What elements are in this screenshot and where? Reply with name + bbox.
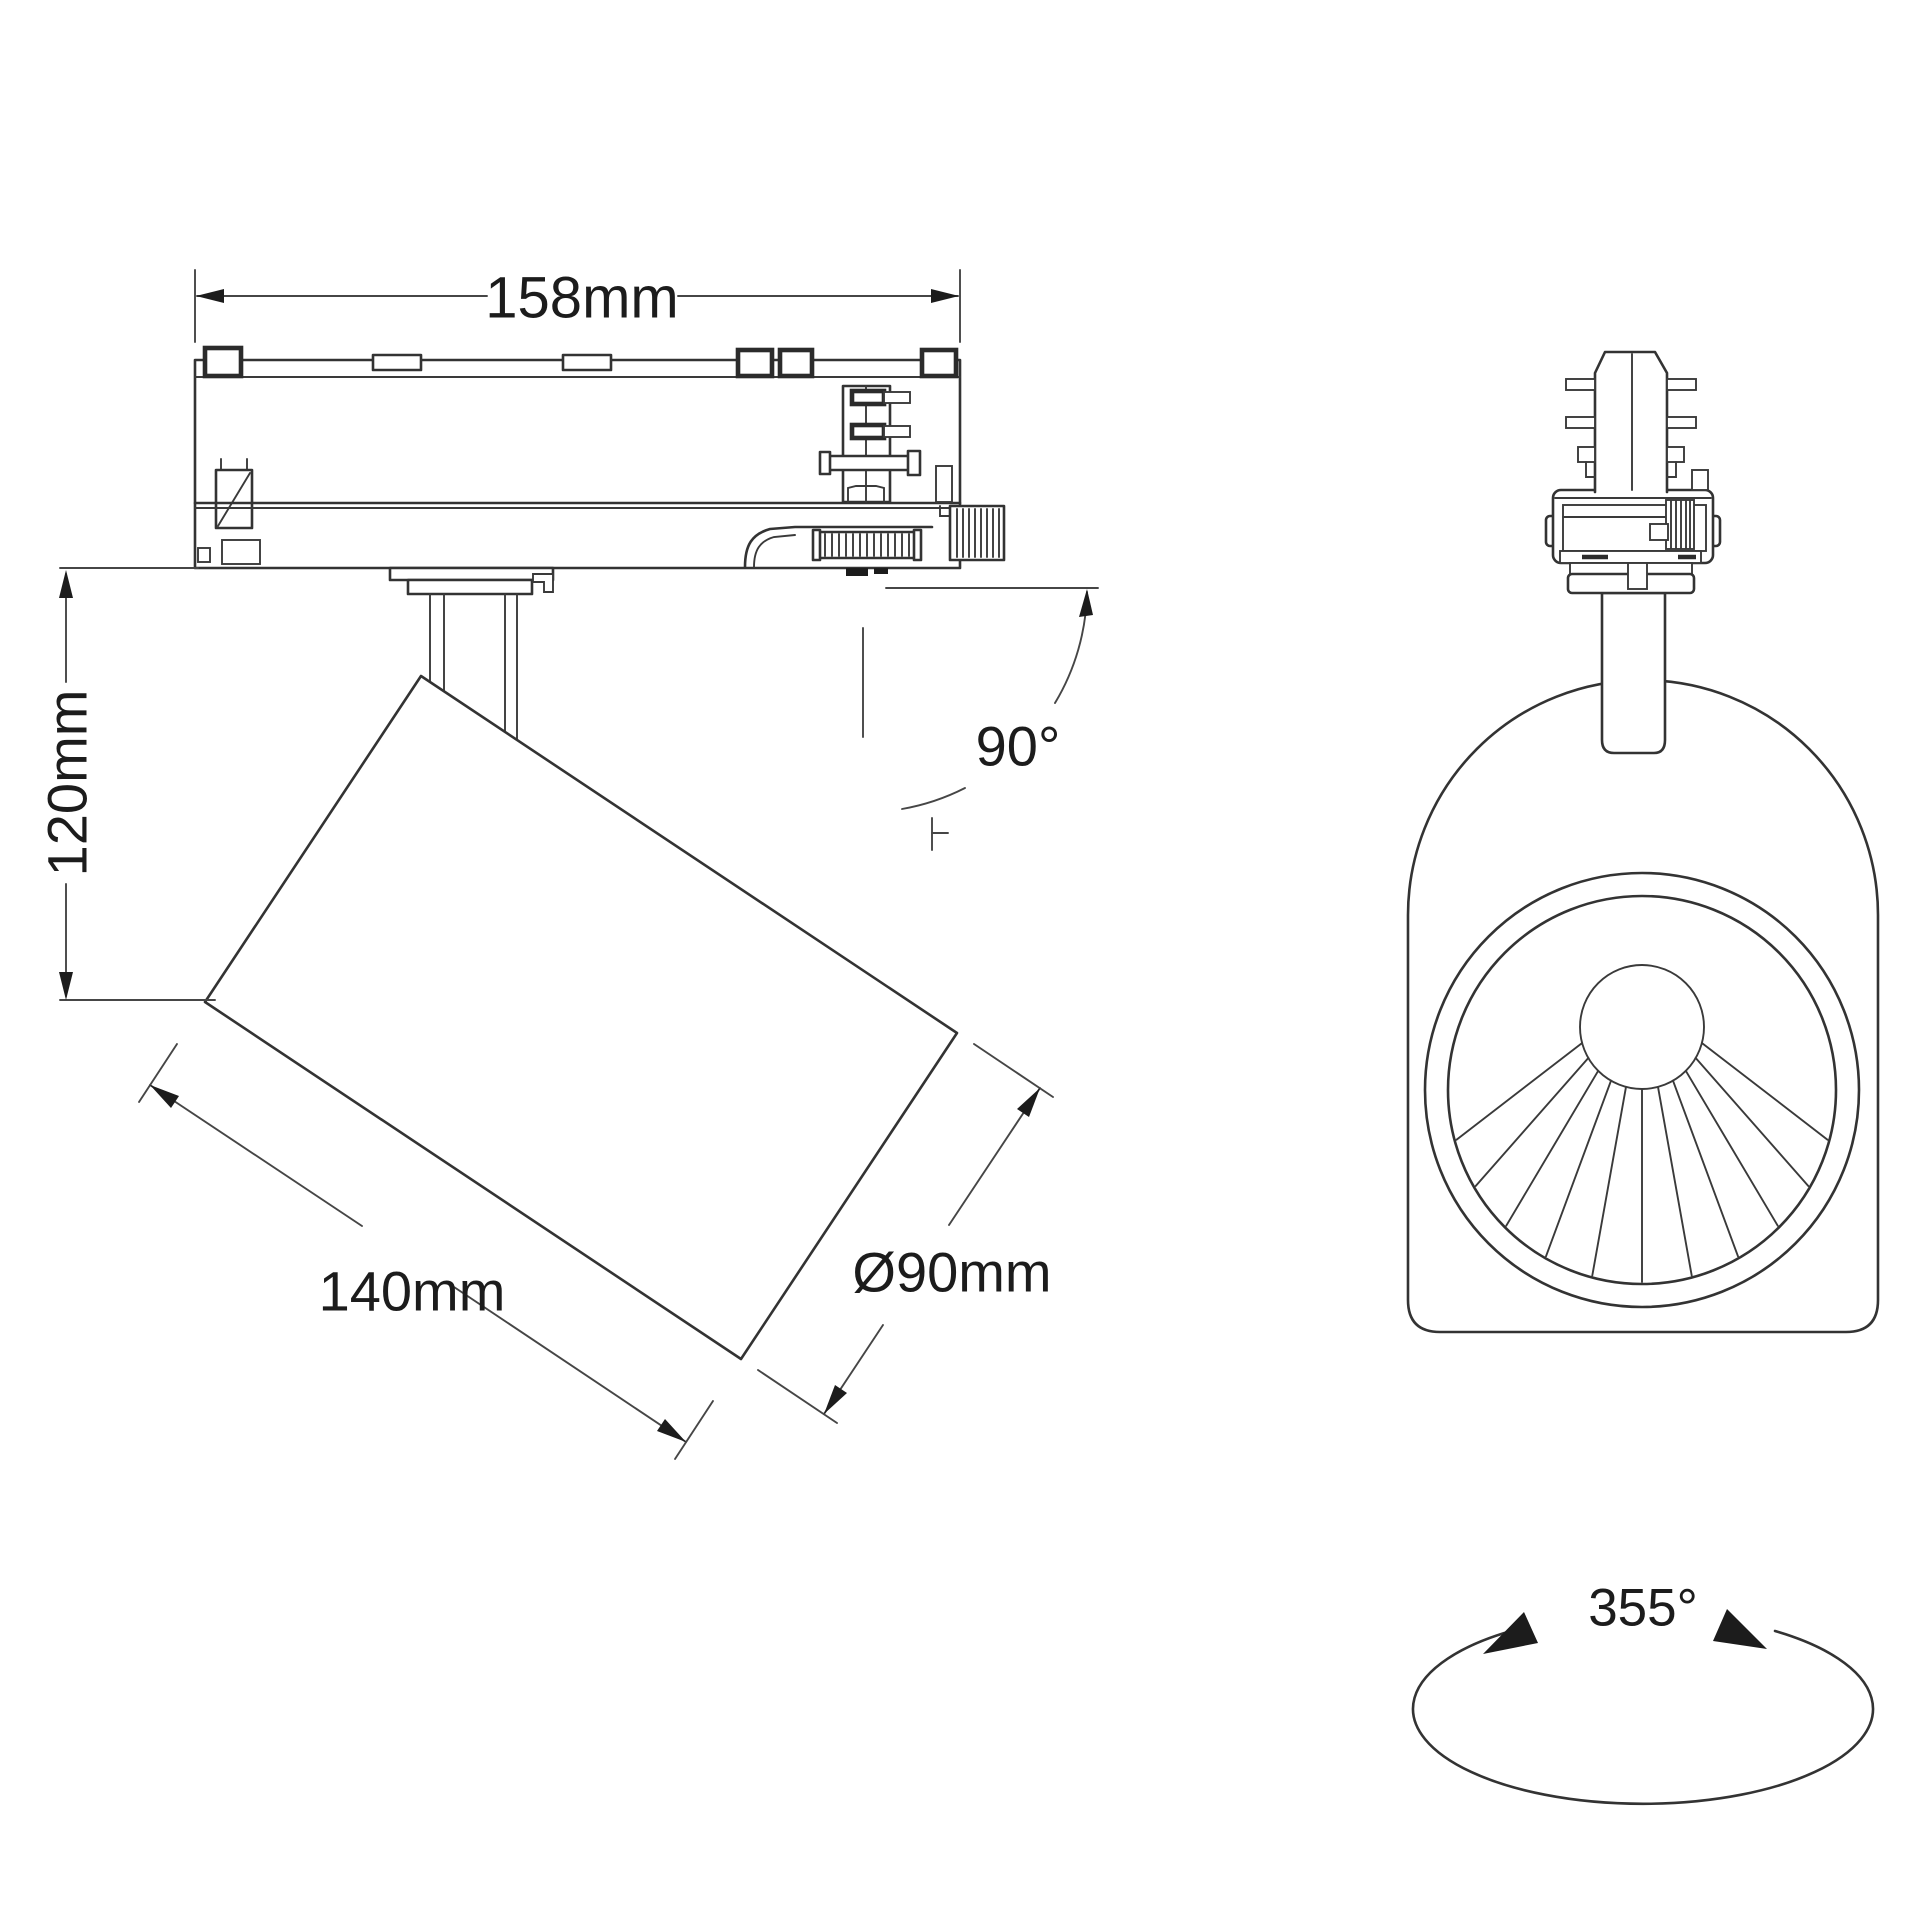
adapter-clip [563,355,611,370]
dimension-label-tilt: 90° [976,715,1061,778]
dim-arrow [1017,1088,1040,1117]
contact-clamp [852,425,884,438]
dim-arrow [657,1419,686,1442]
contact-crossbar [828,456,916,470]
dimension-label-height: 120mm [36,690,99,877]
contact-pin [1667,417,1696,428]
contact-pin [884,392,910,403]
tilt-arc-lower [902,788,965,809]
dim-arrow-down [59,972,73,1000]
adapter-clip [780,350,812,376]
dim-arrow [1079,589,1093,617]
connector-column [1595,352,1667,492]
dimension-label-diameter: Ø90mm [852,1241,1051,1304]
stem-front [1602,593,1665,753]
adapter-foot [846,568,868,576]
dimension-track-length: 158mm [195,266,960,343]
dim-arrow [150,1085,179,1108]
rotation-arrow-right [1713,1609,1767,1649]
front-view: 355° [1408,352,1878,1804]
connector-tab [1578,447,1595,462]
drawing-canvas: 158mm 120mm 140mm [0,0,1920,1920]
contact-clamp [852,391,884,404]
contact-pin [1566,417,1595,428]
contact-slot [936,466,952,502]
dim-arrow-left [196,289,224,303]
contact-pin [884,426,910,437]
dimension-label-body-length: 140mm [319,1260,506,1323]
connector-block [1692,470,1708,490]
side-knob [940,506,1004,560]
adapter-clip [373,355,421,370]
spotlight-body [205,676,957,1359]
contact-pin [1667,379,1696,390]
rotation-arrow-left [1483,1612,1538,1654]
extension-line [974,1044,1053,1097]
adapter-clip [738,350,772,376]
lock-collar [1546,490,1720,593]
contact-pin [1566,379,1595,390]
connector-tab [1667,447,1684,462]
track-connector [1566,352,1708,492]
dim-arrow-up [59,570,73,598]
extension-line [675,1401,713,1459]
adapter-clip [205,348,241,376]
dimension-label-rotation: 355° [1588,1579,1698,1638]
dimension-tilt-angle: 90° [863,588,1098,850]
extension-line [758,1370,837,1423]
dimension-label-track-length: 158mm [485,266,678,331]
track-adapter [195,348,1004,576]
rotation-ellipse [1413,1631,1873,1804]
side-view: 158mm 120mm 140mm [36,266,1099,1460]
adapter-foot [874,568,888,574]
adapter-clip [922,350,956,376]
technical-drawing: 158mm 120mm 140mm [0,0,1920,1920]
dim-arrow-right [931,289,959,303]
mounting-plate [390,568,553,594]
dimension-height: 120mm [36,568,216,1000]
rotation-indicator: 355° [1413,1579,1873,1804]
collar-center-tab [1628,563,1647,589]
dim-arrow [824,1385,847,1414]
